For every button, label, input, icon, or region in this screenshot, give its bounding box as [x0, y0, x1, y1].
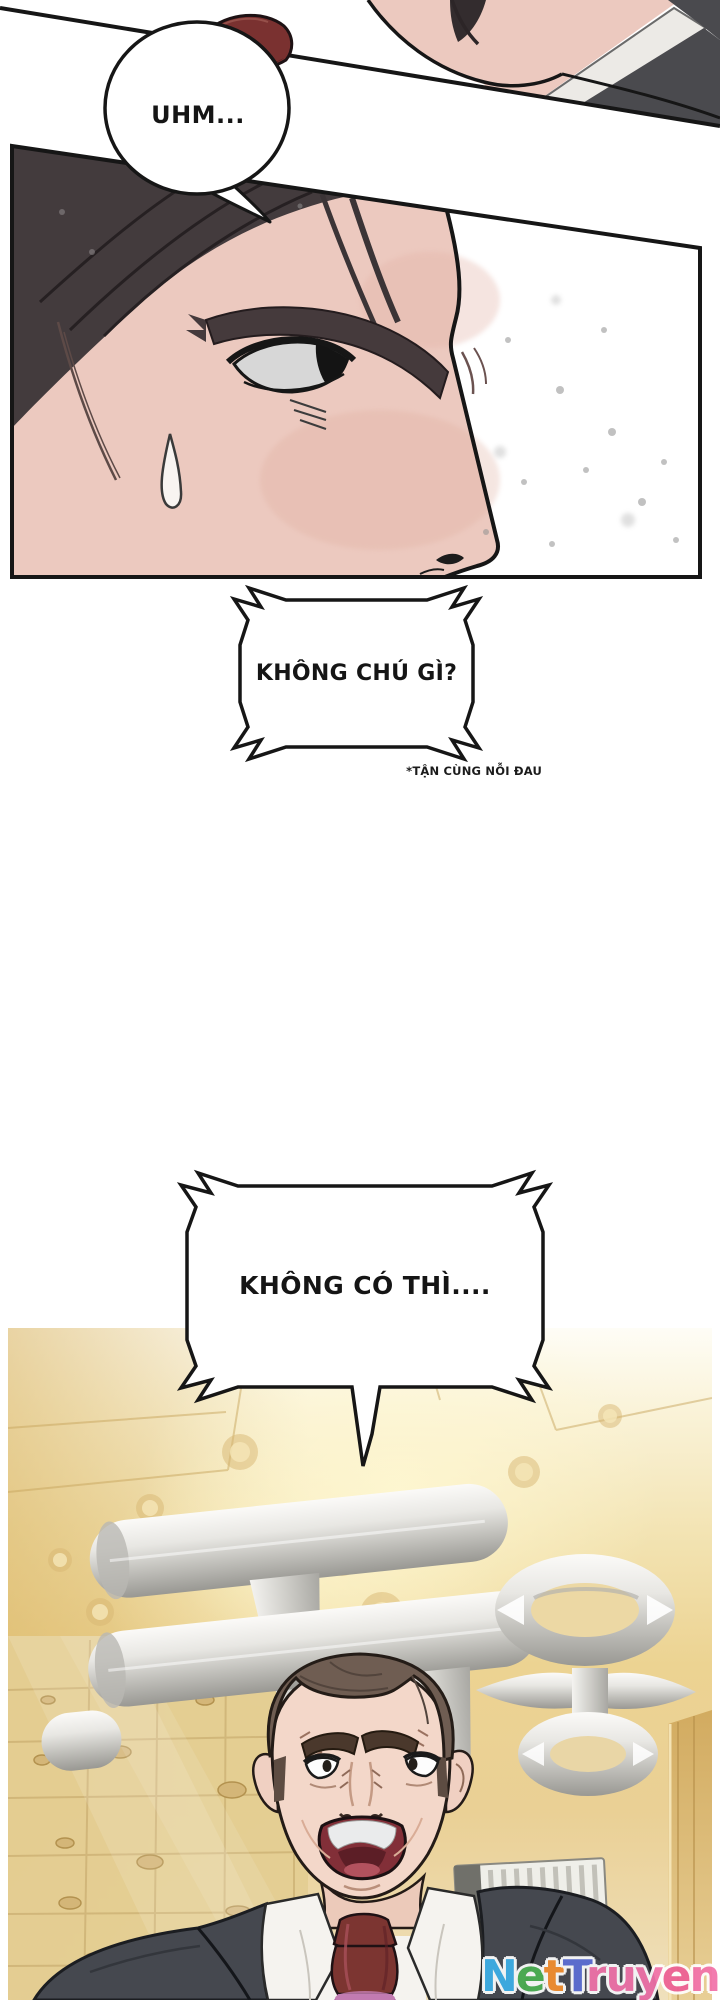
watermark-letter: y: [635, 1951, 662, 2000]
bubble-khong-co-thi-text: KHÔNG CÓ THÌ....: [187, 1186, 543, 1386]
watermark-letter: r: [586, 1951, 606, 2000]
man-tie: [332, 1914, 398, 2000]
caption-box-text: KHÔNG CHÚ GÌ?: [240, 600, 473, 747]
watermark-logo: NetTruyen: [481, 1951, 719, 2000]
watermark-letter: t: [544, 1951, 563, 2000]
watermark-letter: T: [563, 1951, 586, 2000]
watermark-letter: u: [606, 1951, 635, 2000]
bubble-uhm-text: UHM...: [128, 92, 268, 140]
watermark-letter: N: [481, 1951, 516, 2000]
watermark-letter: n: [689, 1951, 718, 2000]
watermark-letter: e: [662, 1951, 690, 2000]
translator-note: *TẬN CÙNG NỖI ĐAU: [320, 764, 542, 778]
comic-page: UHM... KHÔNG CHÚ GÌ? *TẬN CÙNG NỖI ĐAU: [0, 0, 720, 2000]
watermark-letter: e: [516, 1951, 544, 2000]
man-mouth: [319, 1817, 405, 1879]
